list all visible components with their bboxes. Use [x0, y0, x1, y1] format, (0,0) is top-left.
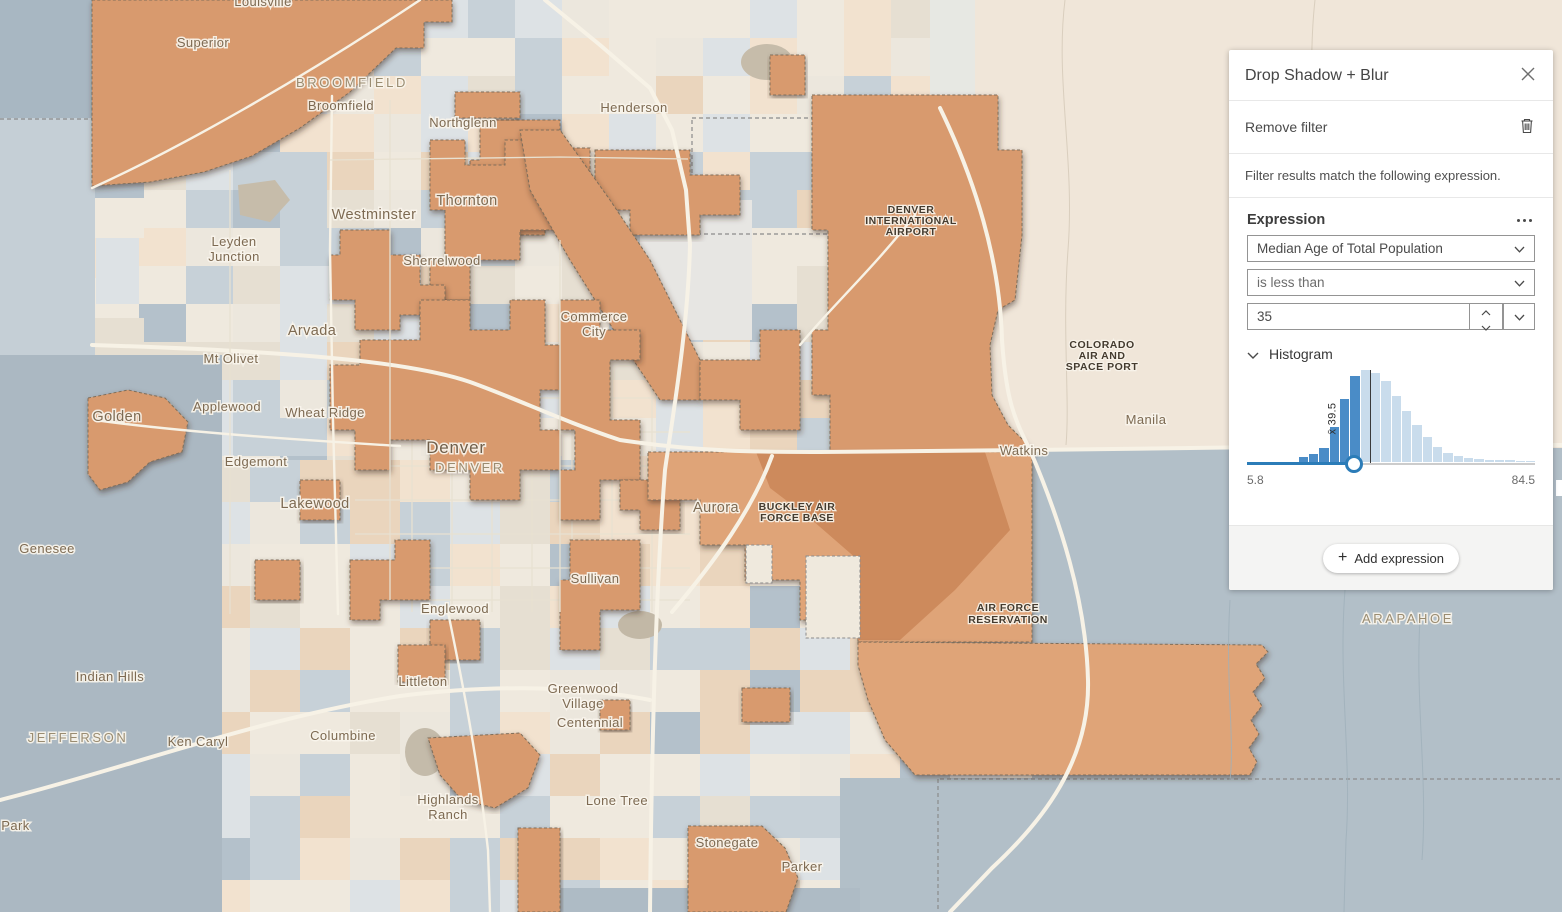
expression-menu-button[interactable]: [1514, 213, 1535, 228]
close-button[interactable]: [1519, 65, 1537, 86]
value-dropdown-button[interactable]: [1503, 303, 1535, 330]
map-label: Superior: [177, 35, 230, 50]
histogram-label: Histogram: [1269, 346, 1333, 362]
histogram-bar: [1402, 411, 1411, 462]
map-label: Parker: [782, 859, 823, 874]
map-label: Manila: [1126, 412, 1167, 427]
slider-handle[interactable]: [1345, 455, 1363, 473]
chevron-down-icon: [1514, 275, 1525, 290]
mean-label: x̄ 39.5: [1327, 375, 1340, 435]
map-label: Sullivan: [571, 571, 620, 586]
map-label: SPACE PORT: [1066, 361, 1139, 373]
map-label: Louisville: [234, 0, 291, 9]
partial-map-marker: [1556, 480, 1562, 496]
map-label: Lakewood: [280, 496, 349, 512]
field-select-value: Median Age of Total Population: [1257, 241, 1443, 256]
map-label: AIRPORT: [886, 226, 937, 238]
map-label: Genesee: [19, 541, 75, 556]
ellipsis-icon: [1516, 215, 1533, 226]
histogram-bar: [1361, 370, 1370, 462]
chevron-down-icon: [1514, 241, 1525, 256]
operator-select[interactable]: is less than: [1247, 269, 1535, 296]
map-label: BROOMFIELD: [296, 75, 408, 90]
map-label: Junction: [208, 249, 260, 264]
histogram-bar: [1392, 396, 1401, 462]
map-label: RESERVATION: [968, 614, 1048, 626]
map-label: Northglenn: [429, 115, 497, 130]
histogram-bar: [1381, 381, 1390, 462]
stepper-down-button[interactable]: [1470, 319, 1502, 334]
trash-icon: [1519, 117, 1535, 137]
histogram-min-label: 5.8: [1247, 473, 1264, 487]
map-label: pen Park: [0, 818, 30, 833]
plus-icon: +: [1338, 553, 1347, 563]
map-label: FORCE BASE: [760, 512, 834, 524]
map-label: Lone Tree: [586, 793, 648, 808]
histogram-slider: [1247, 462, 1535, 465]
add-expression-label: Add expression: [1354, 551, 1444, 566]
panel-header: Drop Shadow + Blur: [1229, 50, 1553, 101]
map-label: Columbine: [310, 728, 376, 743]
map-label: Centennial: [557, 715, 623, 730]
histogram-bar: [1319, 448, 1328, 462]
chevron-up-icon: [1481, 304, 1491, 319]
histogram-bar: [1350, 376, 1359, 462]
map-label: Indian Hills: [76, 669, 144, 684]
histogram-bar: [1412, 425, 1421, 462]
map-label: Stonegate: [696, 835, 759, 850]
map-label: ARAPAHOE: [1362, 611, 1454, 626]
histogram-section: Histogram x̄ 39.5 5.8 84.5: [1247, 330, 1535, 487]
delete-filter-button[interactable]: [1517, 115, 1537, 139]
map-label: AIR FORCE: [977, 602, 1039, 614]
slider-track[interactable]: [1354, 463, 1535, 465]
field-select[interactable]: Median Age of Total Population: [1247, 235, 1535, 262]
histogram-chart: x̄ 39.5: [1247, 370, 1535, 462]
map-label: Broomfield: [308, 98, 374, 113]
map-label: City: [582, 324, 606, 339]
map-label: Village: [562, 696, 604, 711]
expression-section: Expression Median Age of Total Populatio…: [1229, 198, 1553, 487]
map-label: Leyden: [211, 234, 256, 249]
histogram-toggle[interactable]: Histogram: [1247, 346, 1535, 362]
chevron-down-icon: [1247, 346, 1259, 362]
histogram-bar: [1340, 399, 1349, 462]
histogram-bar: [1371, 373, 1380, 462]
histogram-bars: [1247, 370, 1535, 462]
map-label: Westminster: [332, 207, 417, 223]
map-label: Littleton: [398, 674, 447, 689]
map-label: JEFFERSON: [28, 730, 129, 745]
map-label: Golden: [92, 409, 141, 425]
mean-line: [1370, 370, 1371, 463]
chevron-down-icon: [1514, 309, 1525, 324]
map-label: Sherrelwood: [403, 253, 480, 268]
histogram-bar: [1309, 454, 1318, 462]
histogram-bar: [1443, 453, 1452, 462]
histogram-bar: [1433, 447, 1442, 462]
map-label: Watkins: [1000, 443, 1049, 458]
histogram-max-label: 84.5: [1512, 473, 1535, 487]
map-label: Wheat Ridge: [285, 405, 365, 420]
stepper-up-button[interactable]: [1470, 304, 1502, 319]
map-label: Applewood: [193, 399, 261, 414]
map-label: Englewood: [421, 601, 489, 616]
map-label: Commerce: [561, 309, 628, 324]
map-label: Henderson: [600, 100, 667, 115]
remove-filter-label: Remove filter: [1245, 119, 1327, 135]
value-stepper: [1470, 303, 1503, 330]
map-label: Ranch: [428, 807, 468, 822]
map-label: Aurora: [693, 500, 739, 516]
value-row: [1247, 303, 1535, 330]
expression-heading: Expression: [1247, 212, 1325, 228]
map-label: Denver: [426, 438, 486, 457]
map-label: Edgemont: [225, 454, 287, 469]
panel-title: Drop Shadow + Blur: [1245, 67, 1389, 85]
operator-select-value: is less than: [1257, 275, 1325, 290]
remove-filter-row: Remove filter: [1229, 101, 1553, 154]
filter-description: Filter results match the following expre…: [1229, 154, 1553, 198]
map-label: DENVER: [435, 460, 505, 475]
chevron-down-icon: [1481, 319, 1491, 334]
map-label: Ken Caryl: [168, 734, 229, 749]
value-input[interactable]: [1247, 303, 1470, 330]
map-label: Highlands: [417, 792, 479, 807]
panel-footer: + Add expression: [1229, 525, 1553, 590]
map-label: Mt Olivet: [204, 351, 259, 366]
map-label: Greenwood: [548, 681, 619, 696]
filter-panel: Drop Shadow + Blur Remove filter Filter …: [1229, 50, 1553, 590]
map-label: Arvada: [288, 323, 337, 339]
slider-track-selected[interactable]: [1247, 462, 1354, 465]
close-icon: [1521, 67, 1535, 84]
map-label: Thornton: [436, 193, 497, 209]
add-expression-button[interactable]: + Add expression: [1323, 544, 1459, 573]
histogram-bar: [1423, 437, 1432, 462]
